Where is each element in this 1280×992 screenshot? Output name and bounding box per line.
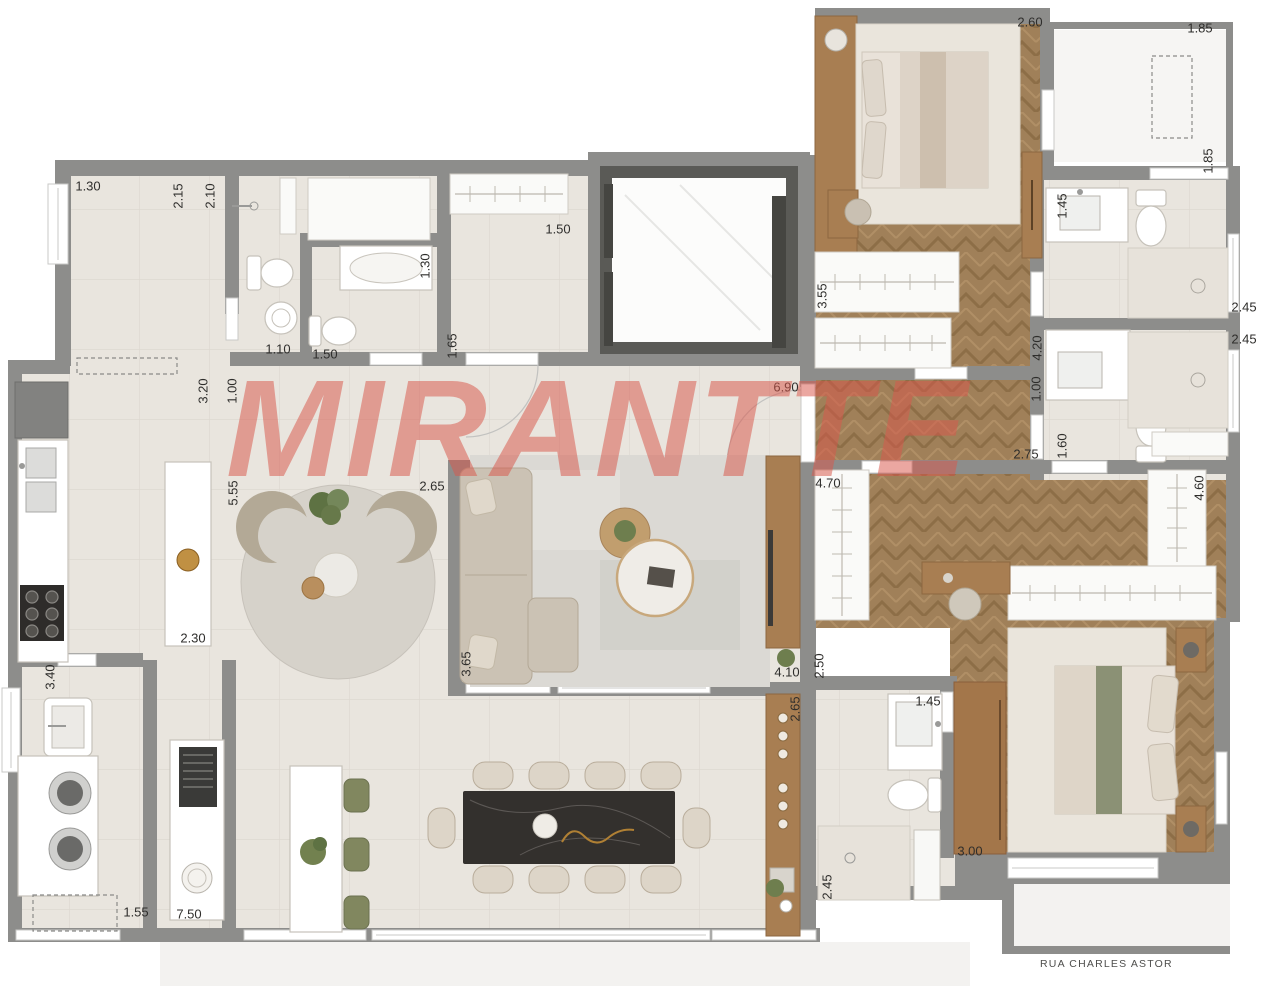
wardrobe-wood (954, 682, 1006, 854)
breakfast-island (290, 766, 369, 932)
plant-icon (614, 520, 636, 542)
round-sink (265, 302, 297, 334)
dimension-label: 4.70 (815, 476, 840, 491)
faucet-icon (19, 463, 25, 469)
side-table (302, 577, 324, 599)
balcony-right-floor (1014, 884, 1230, 946)
ice-bucket (780, 900, 792, 912)
dimension-label: 2.65 (419, 479, 444, 494)
faucet-icon (935, 721, 941, 727)
books (647, 566, 675, 587)
toilet-tank (309, 316, 321, 346)
floor-plan: 1.302.152.101.301.501.101.501.653.201.00… (0, 0, 1280, 992)
desk-chair (949, 588, 981, 620)
sink (896, 702, 932, 746)
plant-icon (321, 505, 341, 525)
toilet (1136, 206, 1166, 246)
table-lamp (1183, 642, 1199, 658)
dimension-label: 1.65 (445, 333, 460, 358)
street-label: RUA CHARLES ASTOR (1040, 958, 1173, 970)
bath-closet (308, 178, 430, 240)
dimension-label: 1.50 (312, 347, 337, 362)
armchair-seat (359, 508, 415, 564)
dimension-label: 1.00 (225, 378, 240, 403)
pillow (862, 59, 887, 117)
bar-cabinet (766, 694, 800, 936)
pillow (1147, 743, 1179, 801)
dimension-label: 1.45 (915, 694, 940, 709)
armchair-seat (258, 508, 314, 564)
dryer-drum (57, 836, 83, 862)
dimension-label: 2.45 (1231, 332, 1256, 347)
dimension-label: 3.65 (459, 651, 474, 676)
toilet (322, 317, 356, 345)
toilet (888, 780, 928, 810)
faucet-icon (1077, 189, 1083, 195)
dimension-label: 1.50 (545, 222, 570, 237)
blanket-runner (1096, 666, 1122, 814)
dimension-label: 2.75 (1013, 447, 1038, 462)
dimension-label: 2.60 (1017, 15, 1042, 30)
bar-shelf (766, 694, 800, 936)
plant-icon (313, 837, 327, 851)
tv-room (460, 455, 800, 687)
bed-blanket (1055, 666, 1099, 814)
dimension-label: 1.30 (75, 179, 100, 194)
oven (179, 747, 217, 807)
plate (533, 814, 557, 838)
dimension-label: 1.10 (265, 342, 290, 357)
washing-machine-drum (57, 780, 83, 806)
dimension-label: 2.45 (820, 874, 835, 899)
shower-glass (280, 178, 296, 234)
toilet-tank (928, 778, 941, 812)
dimension-label: 2.45 (1231, 300, 1256, 315)
toilet (261, 259, 293, 287)
dimension-label: 2.50 (812, 653, 827, 678)
chair (845, 199, 871, 225)
stool (344, 896, 369, 929)
dimension-label: 6.90 (773, 380, 798, 395)
dimension-label: 1.55 (123, 905, 148, 920)
table-lamp (1183, 821, 1199, 837)
dimension-label: 7.50 (176, 907, 201, 922)
dimension-label: 4.20 (1030, 335, 1045, 360)
dimension-label: 2.30 (180, 631, 205, 646)
stool (344, 838, 369, 871)
floor-plan-drawing (0, 0, 1280, 992)
dimension-label: 3.40 (43, 664, 58, 689)
dimension-label: 1.60 (1055, 433, 1070, 458)
dining-table (463, 791, 675, 864)
dimension-label: 1.00 (1029, 376, 1044, 401)
dimension-label: 1.85 (1201, 148, 1216, 173)
dimension-label: 1.45 (1055, 193, 1070, 218)
sofa-chaise (528, 598, 578, 672)
dimension-label: 3.55 (815, 283, 830, 308)
dimension-label: 3.00 (957, 844, 982, 859)
refrigerator (15, 382, 68, 438)
elevator-shaft (588, 152, 810, 366)
fruit-bowl (177, 549, 199, 571)
dimension-label: 1.30 (418, 253, 433, 278)
desk-lamp (943, 573, 953, 583)
shower-floor (1128, 248, 1228, 318)
dimension-label: 5.55 (226, 480, 241, 505)
kitchen-sink (26, 482, 56, 512)
table-lamp (825, 29, 847, 51)
toilet-tank (247, 256, 261, 290)
tv-screen (768, 530, 773, 626)
blanket-runner (920, 52, 946, 188)
shower-tray (914, 830, 940, 900)
plant-icon (766, 879, 784, 897)
bathtub (350, 253, 422, 283)
dimension-label: 2.65 (788, 696, 803, 721)
pillow (862, 121, 887, 179)
dimension-label: 2.15 (171, 183, 186, 208)
dimension-label: 4.60 (1192, 475, 1207, 500)
toilet-tank (1136, 190, 1166, 206)
terrace-floor (1050, 30, 1228, 162)
dimension-label: 2.10 (203, 183, 218, 208)
stool (344, 779, 369, 812)
dimension-label: 3.20 (196, 378, 211, 403)
pillow (1147, 675, 1179, 733)
kitchen-sink (26, 448, 56, 478)
shower-floor (1128, 332, 1228, 428)
sink (1058, 352, 1102, 388)
balcony-floor (160, 942, 970, 986)
dimension-label: 4.10 (774, 665, 799, 680)
round-basin (182, 863, 212, 893)
dimension-label: 1.85 (1187, 21, 1212, 36)
shower-bench (1152, 432, 1228, 456)
